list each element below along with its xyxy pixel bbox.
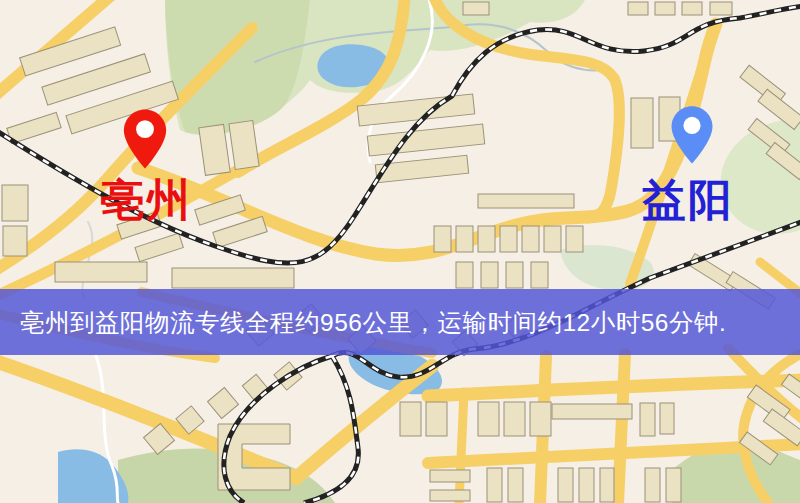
destination-city-label: 益阳 bbox=[642, 178, 734, 222]
route-info-banner: 亳州到益阳物流专线全程约956公里，运输时间约12小时56分钟. bbox=[0, 289, 800, 355]
map-background bbox=[0, 0, 800, 503]
logistics-route-map-image: 亳州 益阳 亳州到益阳物流专线全程约956公里，运输时间约12小时56分钟. bbox=[0, 0, 800, 503]
route-info-text: 亳州到益阳物流专线全程约956公里，运输时间约12小时56分钟. bbox=[20, 306, 726, 339]
origin-city-label: 亳州 bbox=[100, 178, 192, 222]
